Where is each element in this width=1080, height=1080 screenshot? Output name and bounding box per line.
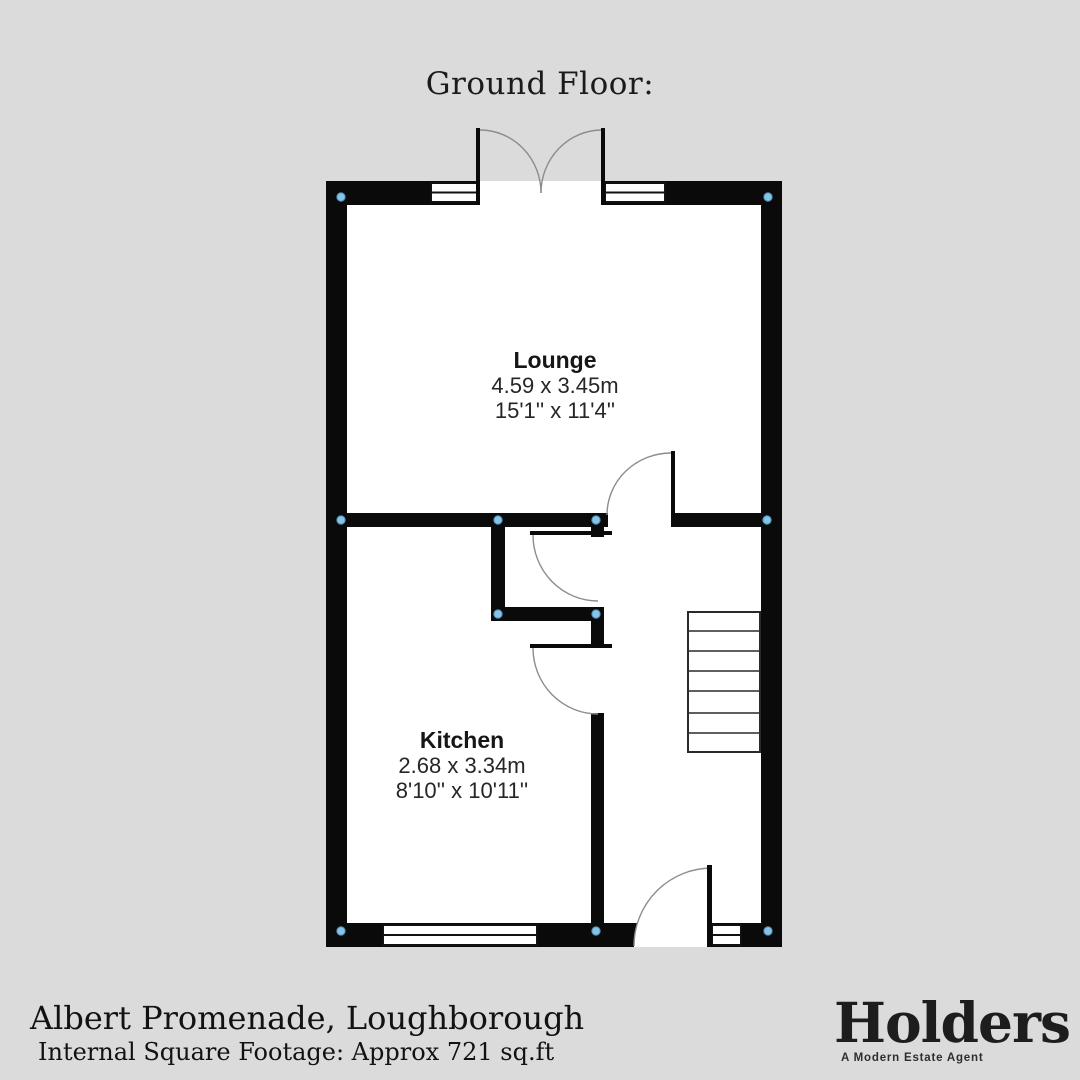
corner-marker xyxy=(592,610,600,618)
window-hall xyxy=(712,925,741,945)
corner-marker xyxy=(592,927,600,935)
wall-right xyxy=(761,181,782,947)
room-dimensions-metric: 2.68 x 3.34m xyxy=(312,753,612,778)
french-doors xyxy=(476,128,605,205)
floor-plan xyxy=(0,0,1080,1080)
corner-marker xyxy=(494,610,502,618)
corner-marker xyxy=(764,927,772,935)
corner-marker xyxy=(337,927,345,935)
wall-closet-south xyxy=(491,607,604,621)
corner-marker xyxy=(337,516,345,524)
door-leaf xyxy=(476,128,480,205)
corner-marker xyxy=(764,193,772,201)
door-leaf xyxy=(530,531,612,535)
window-top-right xyxy=(605,183,665,202)
kitchen-label: Kitchen 2.68 x 3.34m 8'10'' x 10'11'' xyxy=(312,727,612,803)
window-kitchen xyxy=(383,925,537,945)
room-dimensions-imperial: 15'1'' x 11'4'' xyxy=(405,398,705,423)
stairs-outline xyxy=(688,612,760,752)
door-leaf xyxy=(707,865,712,947)
corner-marker xyxy=(763,516,771,524)
room-name: Kitchen xyxy=(312,727,612,753)
door-leaf xyxy=(671,451,675,527)
wall-divider-left xyxy=(347,513,608,527)
lounge-label: Lounge 4.59 x 3.45m 15'1'' x 11'4'' xyxy=(405,347,705,423)
staircase xyxy=(688,612,760,752)
wall-closet-west xyxy=(491,513,505,621)
brand-tagline: A Modern Estate Agent xyxy=(841,1052,983,1064)
room-dimensions-metric: 4.59 x 3.45m xyxy=(405,373,705,398)
wall-left xyxy=(326,181,347,947)
door-leaf xyxy=(530,644,612,648)
wall-divider-right xyxy=(675,513,761,527)
room-name: Lounge xyxy=(405,347,705,373)
brand-logo: Holders xyxy=(834,990,1070,1055)
corner-marker xyxy=(337,193,345,201)
corner-marker xyxy=(494,516,502,524)
door-leaf xyxy=(601,128,605,205)
property-address: Albert Promenade, Loughborough xyxy=(30,999,584,1037)
room-dimensions-imperial: 8'10'' x 10'11'' xyxy=(312,778,612,803)
floor-area xyxy=(326,181,782,947)
square-footage: Internal Square Footage: Approx 721 sq.f… xyxy=(38,1038,554,1066)
corner-marker xyxy=(592,516,600,524)
window-top-left xyxy=(431,183,477,202)
